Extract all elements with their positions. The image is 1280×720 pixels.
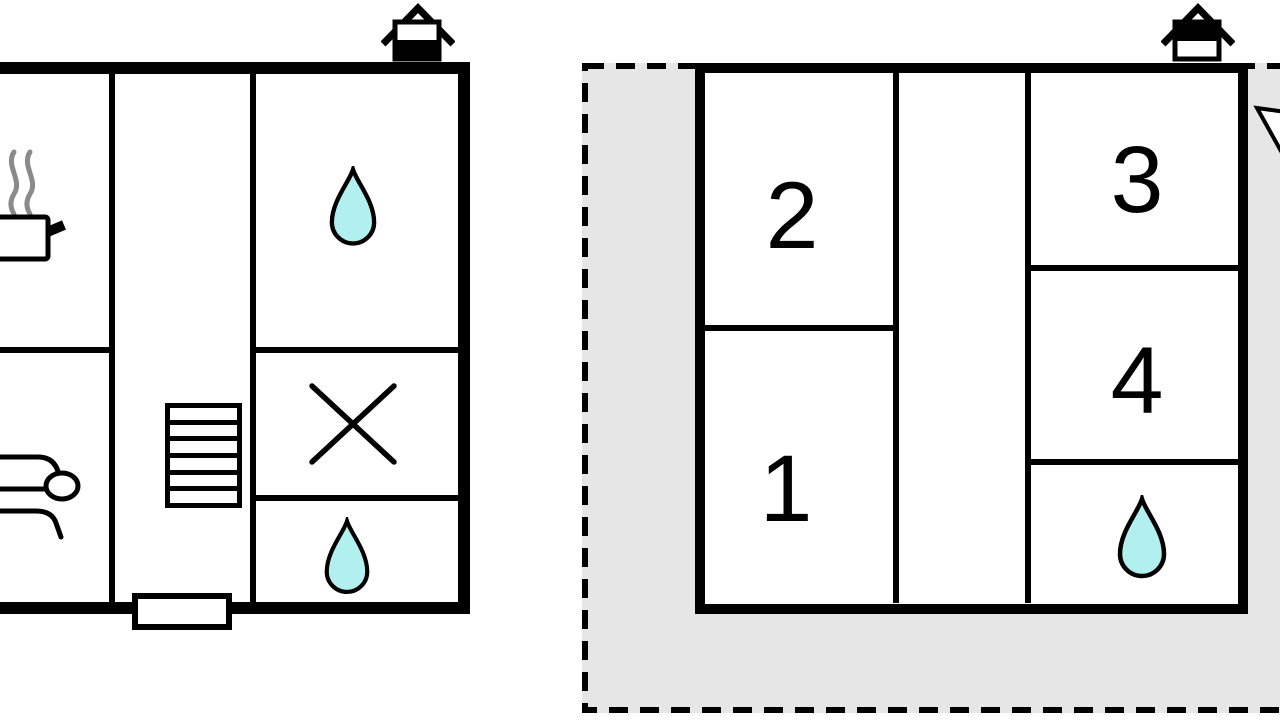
room-label-2: 2 [742,166,842,266]
room-label-3: 3 [1087,130,1187,230]
entrance-door [132,593,232,630]
north-arrow-icon [1252,100,1280,162]
floor-plan-canvas: 2 1 3 4 [0,0,1280,720]
chimney-icon [1161,2,1235,62]
chimney-icon [381,2,455,62]
staircase-icon [165,403,242,508]
wall-right-corridor-west [893,73,899,603]
wall-left-xroom-wc [256,495,458,501]
wall-left-corridor-west [109,74,115,602]
wall-right-room3-room4 [1031,265,1238,271]
room-label-1: 1 [736,439,836,539]
water-drop-icon [324,517,370,597]
cross-x-icon [306,380,400,468]
sofa-icon [0,440,95,545]
wall-left-kitchen-living [0,347,109,353]
wall-right-corridor-east [1025,73,1031,603]
water-drop-icon [329,166,377,248]
wall-left-corridor-east [250,74,256,602]
room-label-4: 4 [1087,331,1187,431]
wall-right-room4-bath [1031,459,1238,465]
water-drop-icon [1117,495,1167,581]
wall-right-room2-room1 [705,325,893,331]
stove-icon [0,145,72,265]
wall-left-bath-xroom [256,347,458,353]
